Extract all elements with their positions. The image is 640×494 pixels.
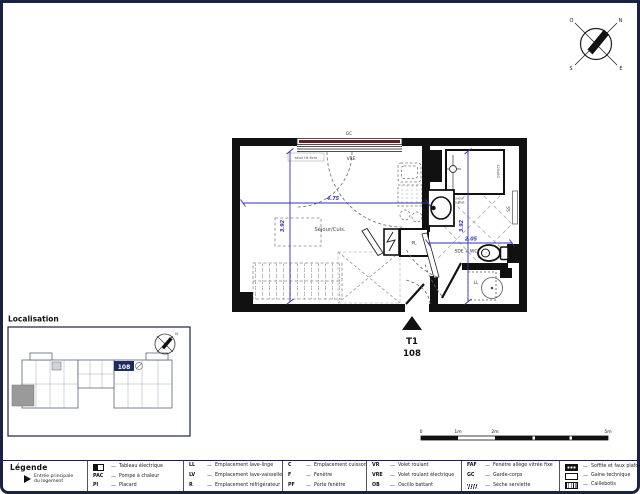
legend-label: Caillebotis [591, 483, 616, 488]
legend-code [93, 464, 108, 471]
legend-item: PF—Porte fenêtre [288, 484, 364, 489]
localisation-title: Localisation [8, 315, 59, 324]
electrical-panel-icon [93, 464, 104, 471]
legend-title: Légende [10, 463, 87, 472]
compass-needle [588, 30, 610, 55]
legend-column: —Soffite et faux plafond—Gaine technique… [559, 461, 640, 491]
legend-dash: — [111, 484, 116, 489]
window-swing-arcs [297, 152, 402, 227]
legend-code: LV [189, 474, 204, 479]
legend-label: Volet roulant électrique [398, 474, 454, 479]
washer-label: LL [474, 280, 479, 286]
unit-type-label: T1 [406, 337, 418, 347]
compass-e: E [619, 66, 622, 72]
legend-item: PAC—Pompe à chaleur [93, 475, 181, 480]
entrance-label: Entrée principale du logement [34, 474, 73, 485]
legend-label: Volet roulant [398, 464, 429, 469]
legend-label: Oscillo battant [398, 484, 433, 489]
scale-tick-5: 5m [604, 429, 611, 435]
legend-item: —Soffite et faux plafond [565, 464, 640, 472]
legend-dash: — [390, 464, 395, 469]
duct-icon [565, 473, 578, 481]
toilet-drain [482, 249, 490, 257]
legend-code [565, 473, 580, 481]
legend-dash: — [485, 464, 490, 469]
living-room-label: Séjour/Cuis. [315, 226, 346, 233]
legend-dash: — [485, 484, 490, 489]
soffit-icon [565, 464, 578, 472]
legend-column: —Tableau électriquePAC—Pompe à chaleurPl… [87, 461, 183, 491]
shower-size-label: 120x80 [496, 164, 500, 178]
unit-number-label: 108 [403, 349, 421, 359]
legend-item: R—Emplacement réfrigérateur [189, 484, 280, 489]
legend-column: VR—Volet roulantVRE—Volet roulant électr… [366, 461, 461, 491]
legend-code: VRE [372, 474, 387, 479]
highlighted-unit-number: 108 [118, 364, 131, 371]
legend-label: Pompe à chaleur [119, 475, 159, 480]
legend-label: Garde-corps [493, 474, 522, 479]
legend-column: C—Emplacement cuissonF—FenêtrePF—Porte f… [282, 461, 366, 491]
towel-dryer-icon [467, 484, 478, 489]
legend-dash: — [306, 484, 311, 489]
legend-label: Emplacement réfrigérateur [215, 484, 280, 489]
toilet-tank [501, 247, 509, 260]
legend-entrance-item: Entrée principale du logement [24, 474, 87, 485]
electrical-panel [384, 229, 399, 255]
kitchen-units [398, 163, 422, 222]
legend-dash: — [306, 474, 311, 479]
legend-code: LL [189, 464, 204, 469]
adjacent-block [12, 385, 34, 406]
legend-code: Pl [93, 484, 108, 489]
legend-code: GC [467, 474, 482, 479]
legend-item: —Caillebotis [565, 482, 640, 490]
legend-label: Sèche serviette [493, 484, 530, 489]
window-type-label: VRE [347, 156, 356, 162]
legend-dash: — [390, 474, 395, 479]
compass-s: S [569, 66, 572, 72]
legend-label: Tableau électrique [119, 465, 163, 470]
legend-code: PF [288, 484, 303, 489]
window-assembly: seuil Ht 6cm GC VRE [288, 131, 402, 162]
legend-item: VR—Volet roulant [372, 464, 459, 469]
legend-column: FAF—Fenêtre allège vitrée fixeGC—Garde-c… [461, 461, 559, 491]
scale-bar: 0 1m 2m 5m [420, 429, 612, 440]
shower-drain [450, 166, 457, 173]
legend-code: R [189, 484, 204, 489]
legend-item: —Tableau électrique [93, 464, 181, 471]
legend-code: VR [372, 464, 387, 469]
legend-dash: — [111, 475, 116, 480]
floor-plan-svg: seuil Ht 6cm GC VRE PL 120x80 receveur e… [0, 0, 640, 494]
localisation-inset: Localisation 108 N [8, 315, 190, 437]
legend-columns: —Tableau électriquePAC—Pompe à chaleurPl… [87, 461, 640, 491]
apartment-plan: seuil Ht 6cm GC VRE PL 120x80 receveur e… [232, 131, 527, 359]
compass-o: O [570, 18, 574, 24]
legend-item: FAF—Fenêtre allège vitrée fixe [467, 464, 557, 469]
hob-burner [412, 212, 422, 222]
entrance-triangle-icon [24, 475, 31, 483]
legend-item: C—Emplacement cuisson [288, 464, 364, 469]
legend-dash: — [207, 474, 212, 479]
dim-living-height: 3.92 [280, 219, 286, 232]
legend-dash: — [390, 484, 395, 489]
dim-bath-width: 2.05 [465, 237, 478, 243]
legend-dash: — [583, 465, 588, 470]
legend-label: Porte fenêtre [314, 484, 345, 489]
legend-column: LL—Emplacement lave-lingeLV—Emplacement … [183, 461, 282, 491]
mini-compass-n: N [175, 332, 178, 336]
compass-rose: N O S E [569, 18, 622, 72]
towel-dryer-label: SS [506, 206, 512, 212]
legend-code [565, 482, 580, 490]
legend-dash: — [111, 465, 116, 470]
legend-label: Gaine technique [591, 474, 630, 479]
legend-label: Emplacement lave-vaisselle [215, 474, 282, 479]
legend-dash: — [306, 464, 311, 469]
legend-dash: — [207, 464, 212, 469]
compass-n: N [619, 18, 623, 24]
legend-item: LV—Emplacement lave-vaisselle [189, 474, 280, 479]
legend-dash: — [207, 484, 212, 489]
legend-code: PAC [93, 475, 108, 480]
legend-item: VRE—Volet roulant électrique [372, 474, 459, 479]
dim-bath-height: 3.92 [459, 219, 465, 232]
tap [431, 206, 435, 210]
legend-code: F [288, 474, 303, 479]
guard-rail-label: GC [346, 131, 352, 137]
scale-tick-1: 1m [454, 429, 461, 435]
bathroom-door-leaf [442, 263, 461, 298]
grating-icon [565, 482, 578, 490]
legend-item: F—Fenêtre [288, 474, 364, 479]
scale-tick-2: 2m [491, 429, 498, 435]
legend-item: Pl—Placard [93, 484, 181, 489]
bathroom-label: SDE + WC [455, 249, 478, 255]
dim-living-width: 4.75 [327, 196, 340, 202]
door-leaf [362, 229, 383, 256]
legend-title-block: Légende Entrée principale du logement [3, 461, 87, 491]
legend-label: Emplacement lave-linge [215, 464, 273, 469]
legend-code: OB [372, 484, 387, 489]
hob-burner [400, 210, 410, 220]
legend-code [565, 464, 580, 472]
closet-label: PL [411, 241, 417, 247]
legend-label: Placard [119, 484, 137, 489]
legend-label: Fenêtre [314, 474, 332, 479]
towel-dryer [513, 191, 518, 224]
legend-item: OB—Oscillo battant [372, 484, 459, 489]
legend-label: Soffite et faux plafond [591, 465, 640, 470]
scale-tick-0: 0 [420, 429, 423, 435]
legend-item: LL—Emplacement lave-linge [189, 464, 280, 469]
legend-code: FAF [467, 464, 482, 469]
duct-block [430, 150, 442, 182]
sill-note: seuil Ht 6cm [295, 156, 318, 160]
legend-item: —Sèche serviette [467, 484, 557, 489]
legend-dash: — [485, 474, 490, 479]
legend-dash: — [583, 474, 588, 479]
entrance-marker-triangle [402, 316, 422, 330]
legend-code [467, 484, 482, 489]
legend-label: Fenêtre allège vitrée fixe [493, 464, 553, 469]
stairwell-mark [52, 362, 61, 370]
legend-item: —Gaine technique [565, 473, 640, 481]
legend-code: C [288, 464, 303, 469]
legend-dash: — [583, 483, 588, 488]
legend-label: Emplacement cuisson [314, 464, 367, 469]
legend-band: Légende Entrée principale du logement —T… [3, 460, 637, 491]
legend-item: GC—Garde-corps [467, 474, 557, 479]
